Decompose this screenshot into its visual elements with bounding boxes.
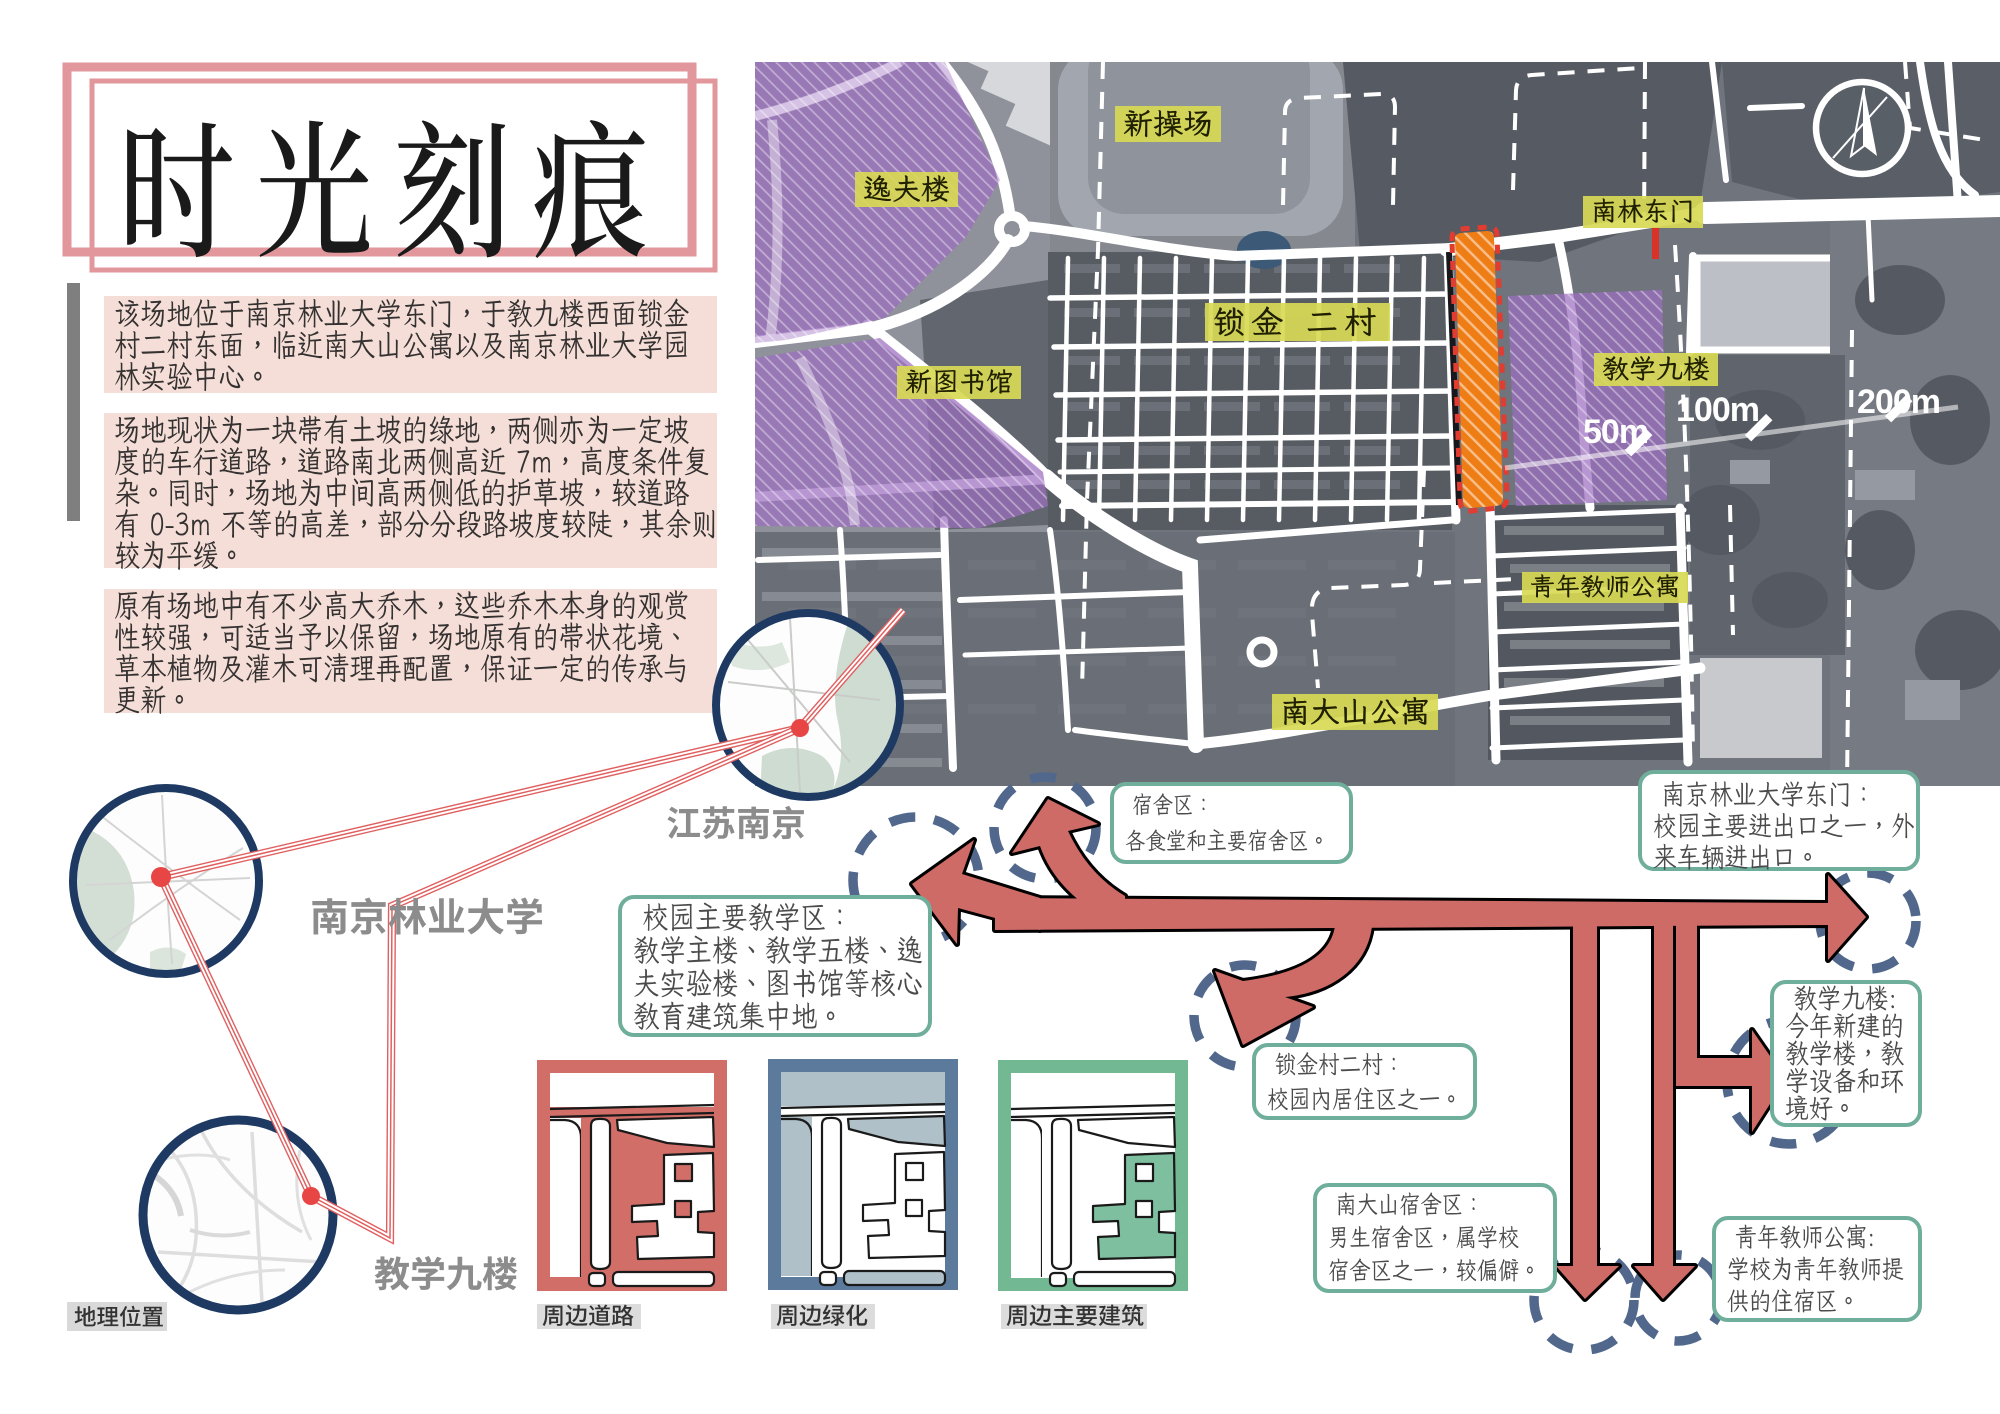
svg-text:200m: 200m	[1857, 383, 1940, 421]
svg-text:50m: 50m	[1583, 413, 1648, 451]
svg-text:100m: 100m	[1676, 391, 1759, 429]
